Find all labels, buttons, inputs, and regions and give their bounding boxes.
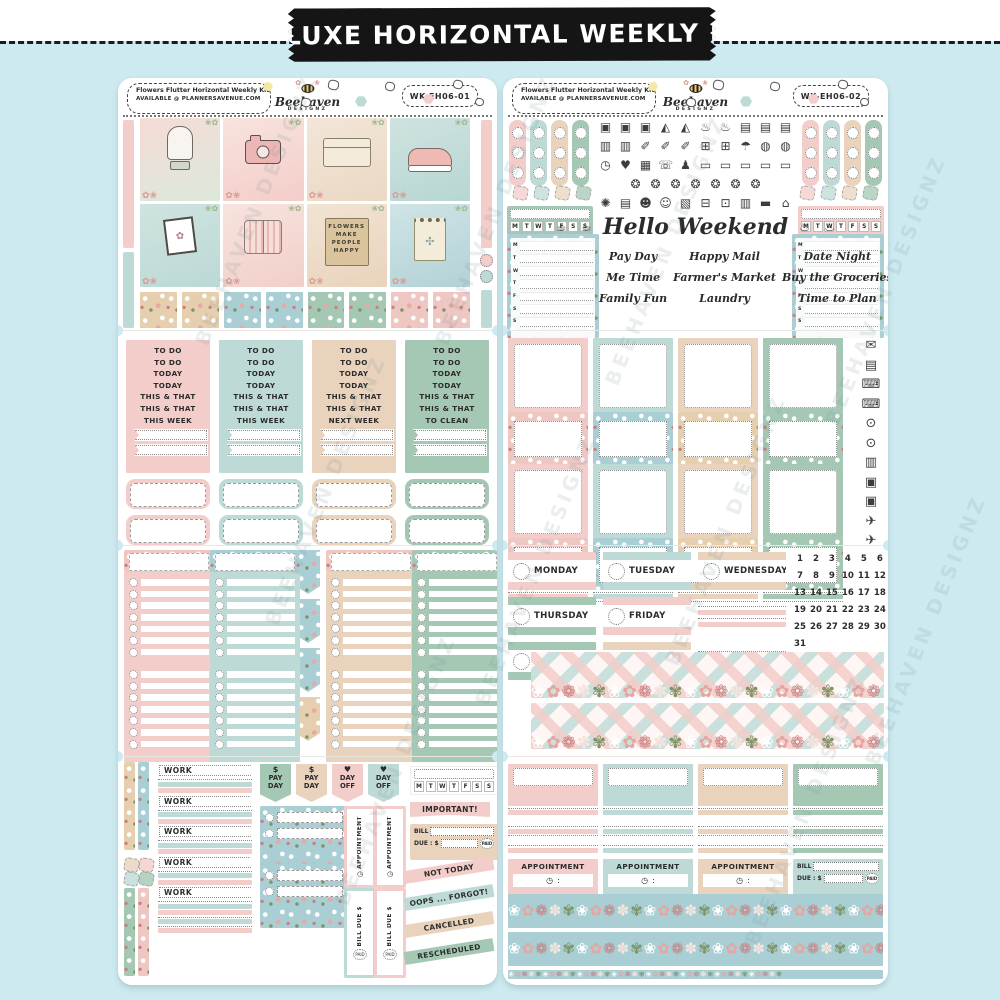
diagonal-strip: CANCELLED bbox=[404, 911, 495, 938]
day-name: THURSDAY bbox=[534, 611, 588, 621]
washing-machine-icon: ▣ bbox=[617, 118, 634, 135]
washi-strip-teal bbox=[158, 782, 252, 787]
hex-icon bbox=[355, 96, 367, 107]
checklist-row bbox=[215, 648, 295, 657]
checklist-line bbox=[227, 637, 295, 644]
flower-glyph: ✿ bbox=[725, 902, 739, 920]
todo-label: TO DO bbox=[405, 357, 489, 369]
floral-label-sticker bbox=[763, 412, 843, 464]
right-section-days-washi: MONDAYTUESDAYWEDNESDAYTHURSDAYFRIDAYSATU… bbox=[503, 548, 888, 754]
checklist-row bbox=[417, 670, 497, 679]
day-letter: T bbox=[513, 256, 518, 261]
flower-glyph: ✾ bbox=[673, 970, 680, 978]
checklist-header-label bbox=[326, 550, 416, 572]
checkbox-circle bbox=[129, 682, 138, 691]
label-box-sticker bbox=[793, 764, 883, 806]
tickets-icon: ▤ bbox=[865, 356, 877, 376]
todo-label: THIS WEEK bbox=[126, 415, 210, 427]
weekly-list-row: W bbox=[513, 266, 593, 276]
date-number: 4 bbox=[842, 554, 854, 564]
checklist-line bbox=[227, 706, 295, 713]
shopping-cart-icon: ⊞ bbox=[697, 137, 714, 154]
trash-can-icon: ▥ bbox=[617, 137, 634, 154]
checkbox-circle bbox=[331, 705, 340, 714]
flower-glyph: ❁ bbox=[556, 970, 563, 978]
checklist-line bbox=[429, 741, 497, 748]
day-name: WEDNESDAY bbox=[724, 566, 786, 576]
cat-icon: ☺ bbox=[657, 194, 674, 211]
dotted-line bbox=[158, 901, 252, 902]
flower-glyph: ✽ bbox=[806, 733, 821, 749]
day-middle: THURSDAY bbox=[508, 605, 596, 627]
checklist-row bbox=[417, 648, 497, 657]
tracker-letter: S bbox=[472, 781, 482, 792]
weekly-list-field: MTWTFSS bbox=[511, 238, 595, 340]
blank-flag-sticker bbox=[320, 444, 394, 456]
photo-box-botanical-frame: ✿ bbox=[140, 204, 220, 287]
halfbox-sticker bbox=[763, 464, 843, 538]
appointment-vertical-sticker: APPOINTMENT◷ bbox=[374, 806, 406, 888]
checklist-row bbox=[215, 682, 295, 691]
flower-border: ❀✿❁✽✾❀✿❁✽✾❀✿❁✽✾❀✿❁✽✾❀✿❁✽✾❀ bbox=[531, 735, 884, 749]
todo-column-pink: TO DOTO DOTODAYTODAYTHIS & THATTHIS & TH… bbox=[126, 340, 210, 545]
thin-strip bbox=[698, 848, 788, 853]
blank-flag-sticker bbox=[320, 429, 394, 441]
pennant-word: PAY bbox=[260, 774, 291, 782]
checkbox-circle bbox=[129, 705, 138, 714]
washi-strip-teal bbox=[158, 904, 252, 909]
flower-glyph: ❀ bbox=[680, 970, 687, 978]
flower-glyph: ❀ bbox=[749, 970, 756, 978]
halfbox-field bbox=[514, 470, 582, 534]
flower-glyph: ❀ bbox=[607, 682, 622, 698]
todo-label: TO DO bbox=[312, 345, 396, 357]
blue-floral-washi-strip: ❀✿❁✽✾❀✿❁✽✾❀✿❁✽✾❀✿❁✽✾❀✿❁✽✾❀✿❁✽✾❀✿❁✽✾❀✿❁✽✾ bbox=[508, 894, 883, 928]
sheet-code: WK-EH06-01 bbox=[402, 85, 478, 107]
tv-icon: ▭ bbox=[757, 156, 774, 173]
flower-glyph: ❁ bbox=[728, 970, 735, 978]
icon-row: ❂❂❂❂❂❂❂ bbox=[503, 175, 888, 192]
flower-glyph: ✿ bbox=[699, 682, 714, 698]
coffee-cup-icon: ☕ bbox=[553, 219, 570, 236]
appointment-field: APPOINTMENT◷ bbox=[347, 809, 373, 885]
tracker-letter: W bbox=[437, 781, 447, 792]
appointment-time-field: ◷: bbox=[513, 874, 593, 887]
scallop-hex-teal bbox=[480, 270, 493, 283]
checklist-row bbox=[215, 636, 295, 645]
checklist-line bbox=[429, 694, 497, 701]
mixer-icon: ♨ bbox=[717, 118, 734, 135]
todo-label: TODAY bbox=[405, 368, 489, 380]
flower-icon: ❀ bbox=[314, 79, 320, 87]
flower-glyph: ✾ bbox=[562, 940, 576, 958]
checklist-row bbox=[215, 740, 295, 749]
day-sticker-thursday: THURSDAY bbox=[508, 597, 596, 635]
washing-machine-icon: ▣ bbox=[637, 118, 654, 135]
icon-row: ◷♥▦☏♟▭▭▭▭▭ bbox=[503, 156, 888, 173]
flower-glyph: ✽ bbox=[820, 940, 834, 958]
checkbox-circle bbox=[129, 624, 138, 633]
cut-line bbox=[118, 756, 497, 757]
blank-flag-sticker bbox=[227, 429, 301, 441]
checkbox-circle bbox=[265, 813, 274, 822]
spray-bottle-icon: ✐ bbox=[677, 137, 694, 154]
flower-glyph: ✾ bbox=[630, 940, 644, 958]
washi-strip-teal bbox=[158, 843, 252, 848]
checklist-row bbox=[331, 682, 411, 691]
flower-glyph: ✿ bbox=[623, 733, 638, 749]
meal-icon: ❂ bbox=[667, 175, 684, 192]
kit-info-box: Flowers Flutter Horizontal Weekly Kit AV… bbox=[127, 83, 271, 114]
bill-field bbox=[813, 862, 879, 871]
availability-text: AVAILABLE @ PLANNERSAVENUE.COM bbox=[136, 96, 264, 102]
checklist-header-field bbox=[331, 553, 411, 571]
work-flag-sticker: WORK bbox=[158, 764, 252, 777]
dotted-hex-pink bbox=[138, 857, 155, 873]
flower-glyph: ✾ bbox=[562, 902, 576, 920]
spacer bbox=[793, 817, 883, 825]
checklist-line bbox=[227, 694, 295, 701]
laptop-icon: ⌨ bbox=[862, 375, 881, 395]
scallop-label-field bbox=[409, 483, 485, 507]
checkbox-circle bbox=[215, 590, 224, 599]
checkbox-circle bbox=[215, 578, 224, 587]
checklist-line bbox=[429, 602, 497, 609]
thin-strip bbox=[603, 848, 693, 853]
day-band bbox=[603, 642, 691, 650]
checklist-row bbox=[417, 624, 497, 633]
flower-glyph: ❁ bbox=[671, 940, 685, 958]
checkbox-circle bbox=[129, 578, 138, 587]
flower-glyph: ❁ bbox=[714, 682, 729, 698]
dotted-hex-green bbox=[138, 871, 155, 887]
scallop-label-sticker bbox=[126, 515, 210, 545]
checklist-row bbox=[129, 613, 209, 622]
script-phrase-sticker: Happy Mail bbox=[673, 250, 776, 263]
floral-side-strip bbox=[138, 762, 149, 850]
clock-icon: ◷ bbox=[546, 876, 553, 885]
checklist-box bbox=[124, 664, 214, 762]
halfbox-sticker bbox=[678, 464, 758, 538]
flower-glyph: ❀ bbox=[712, 940, 726, 958]
checkbox-circle bbox=[215, 682, 224, 691]
checkbox-circle bbox=[215, 705, 224, 714]
calendar-icon: ▤ bbox=[617, 194, 634, 211]
checkbox-circle bbox=[129, 728, 138, 737]
checklist-row bbox=[331, 716, 411, 725]
checkbox-circle bbox=[215, 648, 224, 657]
todo-label-block: TO DOTO DOTODAYTODAYTHIS & THATTHIS & TH… bbox=[312, 340, 396, 473]
label-field bbox=[277, 812, 343, 823]
dotted-line bbox=[793, 835, 883, 836]
bill-row: BILL bbox=[797, 862, 879, 871]
scallop-label-sticker bbox=[312, 479, 396, 509]
halfbox-field bbox=[769, 344, 837, 408]
sticker-sheet-left: Flowers Flutter Horizontal Weekly Kit AV… bbox=[118, 78, 497, 985]
washi-strip-pink bbox=[158, 910, 252, 915]
checkbox-circle bbox=[417, 716, 426, 725]
label-field bbox=[277, 886, 343, 897]
halfbox-field bbox=[514, 344, 582, 408]
cut-line bbox=[503, 545, 888, 546]
checkbox-circle bbox=[215, 716, 224, 725]
flower-glyph: ✿ bbox=[687, 970, 694, 978]
globe-icon: ◍ bbox=[777, 137, 794, 154]
checkbox-circle bbox=[331, 670, 340, 679]
checklist-line bbox=[141, 671, 209, 678]
checklist-line bbox=[343, 718, 411, 725]
floral-label-sticker bbox=[508, 412, 588, 464]
checklist-row bbox=[129, 670, 209, 679]
bill-field bbox=[430, 827, 494, 836]
washi-strip-pink bbox=[158, 928, 252, 933]
hello-weekend-row: ☕☕Hello Weekend♨♨ bbox=[503, 214, 888, 240]
cut-line bbox=[503, 330, 888, 331]
flower-glyph: ✽ bbox=[806, 682, 821, 698]
checkbox-circle bbox=[417, 636, 426, 645]
checklist-row bbox=[129, 693, 209, 702]
left-section-flags-labels: WORKWORKWORKWORKWORK$PAYDAY$PAYDAY♥DAYOF… bbox=[118, 760, 497, 982]
day-band bbox=[508, 642, 596, 650]
day-name: MONDAY bbox=[534, 566, 578, 576]
pennant-row: $PAYDAY$PAYDAY♥DAYOFF♥DAYOFF bbox=[260, 764, 399, 802]
floral-box-row bbox=[265, 812, 343, 823]
money-bag-icon: ⊙ bbox=[866, 414, 877, 434]
flower-glyph: ❁ bbox=[867, 733, 882, 749]
flower-glyph: ✽ bbox=[617, 940, 631, 958]
flower-glyph: ✿ bbox=[657, 940, 671, 958]
checklist-line bbox=[227, 718, 295, 725]
dotted-line bbox=[508, 845, 598, 846]
checkbox-circle bbox=[417, 670, 426, 679]
checklist-line bbox=[141, 602, 209, 609]
checklist-box bbox=[124, 572, 214, 670]
todo-label: THIS & THAT bbox=[219, 391, 303, 403]
flower-glyph: ❀ bbox=[576, 902, 590, 920]
kit-info-box: Flowers Flutter Horizontal Weekly Kit AV… bbox=[512, 83, 656, 114]
pennant-icon: $ bbox=[296, 766, 327, 774]
scallop-label-field bbox=[223, 519, 299, 543]
checklist-row bbox=[215, 590, 295, 599]
thin-strip bbox=[793, 810, 883, 815]
halfbox-sticker bbox=[508, 464, 588, 538]
flower-glyph: ✾ bbox=[698, 902, 712, 920]
flower-glyph: ✽ bbox=[729, 733, 744, 749]
todo-columns-row: TO DOTO DOTODAYTODAYTHIS & THATTHIS & TH… bbox=[118, 334, 497, 545]
flower-glyph: ❁ bbox=[807, 902, 821, 920]
floral-side-strip bbox=[124, 762, 135, 850]
checklist-line bbox=[429, 637, 497, 644]
flower-glyph: ✽ bbox=[549, 902, 563, 920]
todo-label: TO DO bbox=[126, 357, 210, 369]
date-number: 21 bbox=[826, 605, 838, 615]
sign-word: MAKE bbox=[326, 231, 368, 239]
bill-due-label: BILL DUE $ bbox=[357, 906, 363, 947]
pennant-word: PAY bbox=[296, 774, 327, 782]
sign-word: FLOWERS bbox=[326, 223, 368, 231]
bill-due-label: BILL DUE $ bbox=[387, 906, 393, 947]
bill-due-box: BILLDUE :$PAID bbox=[410, 824, 497, 860]
flower-glyph: ❁ bbox=[603, 940, 617, 958]
photo-box-keepsake-box bbox=[307, 118, 387, 201]
flower-glyph: ❀ bbox=[847, 902, 861, 920]
todo-label: THIS & THAT bbox=[312, 403, 396, 415]
checklist-row bbox=[129, 648, 209, 657]
flower-glyph: ✿ bbox=[793, 902, 807, 920]
flower-glyph: ✾ bbox=[630, 902, 644, 920]
checklist-row bbox=[331, 728, 411, 737]
checklist-row bbox=[129, 624, 209, 633]
flower-glyph: ✽ bbox=[549, 940, 563, 958]
meal-icon: ❂ bbox=[627, 175, 644, 192]
tv-icon: ▭ bbox=[777, 156, 794, 173]
washi-strip-pink bbox=[158, 880, 252, 885]
dotted-line bbox=[793, 808, 883, 809]
time-colon: : bbox=[557, 876, 560, 885]
floral-label-field bbox=[599, 421, 667, 457]
weekly-list-row: S bbox=[798, 317, 878, 327]
flower-glyph: ❁ bbox=[522, 970, 529, 978]
appointment-label: APPOINTMENT bbox=[357, 816, 363, 869]
photo-box-flower-sneakers bbox=[390, 118, 470, 201]
checklist-box bbox=[326, 664, 416, 762]
flower-glyph: ❀ bbox=[684, 682, 699, 698]
side-strip bbox=[123, 120, 134, 248]
todo-label: TO DO bbox=[219, 357, 303, 369]
checklist-line bbox=[429, 671, 497, 678]
flower-glyph: ✾ bbox=[821, 682, 836, 698]
sign-word: PEOPLE bbox=[326, 239, 368, 247]
checklist-row bbox=[331, 705, 411, 714]
checklist-line bbox=[343, 694, 411, 701]
checkbox-circle bbox=[331, 648, 340, 657]
flower-glyph: ✽ bbox=[577, 682, 592, 698]
laundry-basket-icon: ▤ bbox=[757, 118, 774, 135]
kettle-icon: ♨ bbox=[796, 219, 813, 236]
diagonal-strip-group: NOT TODAYOOPS ... FORGOT!CANCELLEDRESCHE… bbox=[404, 864, 494, 972]
flower-glyph: ❁ bbox=[790, 733, 805, 749]
halfbox-sticker bbox=[593, 464, 673, 538]
day-letter: M bbox=[798, 243, 803, 248]
due-field bbox=[441, 839, 478, 848]
flower-glyph: ✽ bbox=[820, 902, 834, 920]
flower-glyph: ✿ bbox=[721, 970, 728, 978]
bill-label: BILL bbox=[797, 863, 811, 870]
flower-glyph: ❁ bbox=[638, 733, 653, 749]
list-line bbox=[520, 254, 593, 264]
scallop-label-sticker bbox=[312, 515, 396, 545]
work-flag-sticker: WORK bbox=[158, 886, 252, 899]
flower-glyph: ✾ bbox=[745, 733, 760, 749]
flower-glyph: ✿ bbox=[725, 940, 739, 958]
todo-label-block: TO DOTO DOTODAYTODAYTHIS & THATTHIS & TH… bbox=[405, 340, 489, 473]
money-icon: ▬ bbox=[757, 194, 774, 211]
washi-strip-pink bbox=[158, 819, 252, 824]
flower-glyph: ❁ bbox=[671, 902, 685, 920]
checkbox-circle bbox=[417, 590, 426, 599]
checkbox-circle bbox=[417, 728, 426, 737]
checklist-row bbox=[331, 613, 411, 622]
date-circle bbox=[513, 563, 530, 580]
checklist-row bbox=[215, 578, 295, 587]
scallop-hex-pink bbox=[480, 254, 493, 267]
washi-flag bbox=[308, 292, 345, 328]
paid-label: PAID bbox=[383, 949, 397, 960]
checklist-line bbox=[227, 614, 295, 621]
checklist-row bbox=[331, 601, 411, 610]
clock-icon: ◷ bbox=[597, 156, 614, 173]
shopping-cart-icon: ⊞ bbox=[717, 137, 734, 154]
flower-glyph: ❀ bbox=[836, 733, 851, 749]
bowling-pins-icon: ♟ bbox=[677, 156, 694, 173]
list-line bbox=[805, 304, 878, 314]
flower-glyph: ❀ bbox=[847, 940, 861, 958]
pennant-icon: ♥ bbox=[368, 766, 399, 774]
dotted-line bbox=[158, 917, 252, 918]
photo-box-butterfly-cloche bbox=[140, 118, 220, 201]
date-number: 22 bbox=[842, 605, 854, 615]
washi-strip-pink bbox=[158, 788, 252, 793]
work-flag-column: WORKWORKWORKWORKWORK bbox=[158, 764, 252, 935]
washi-strip-teal bbox=[158, 919, 252, 924]
checklist-line bbox=[429, 614, 497, 621]
todo-label: TODAY bbox=[312, 368, 396, 380]
list-line bbox=[520, 279, 593, 289]
clock-icon: ◷ bbox=[357, 870, 363, 878]
date-number: 26 bbox=[810, 622, 822, 632]
flower-glyph: ✾ bbox=[668, 733, 683, 749]
scallop-label-field bbox=[316, 519, 392, 543]
appointment-label: APPOINTMENT bbox=[608, 862, 688, 871]
day-letter: T bbox=[513, 281, 518, 286]
floral-label-sticker bbox=[593, 412, 673, 464]
weekly-list-row: S bbox=[513, 317, 593, 327]
flower-glyph: ❀ bbox=[712, 902, 726, 920]
flower-glyph: ✾ bbox=[698, 940, 712, 958]
washi-flag bbox=[349, 292, 386, 328]
thin-strip bbox=[508, 829, 598, 834]
date-number: 23 bbox=[858, 605, 870, 615]
flower-glyph: ✽ bbox=[617, 902, 631, 920]
pennant-pay-day: $PAYDAY bbox=[296, 764, 327, 802]
kettle-icon: ♨ bbox=[821, 219, 838, 236]
weekly-list-box: MTWTFSS bbox=[507, 234, 599, 338]
flower-glyph: ✽ bbox=[653, 733, 668, 749]
bill-row: BILL bbox=[414, 827, 494, 836]
camera-icon: ▣ bbox=[865, 492, 877, 512]
dotted-hex-tan bbox=[123, 857, 140, 873]
checklist-row bbox=[215, 613, 295, 622]
flower-glyph: ❁ bbox=[807, 940, 821, 958]
washi-strip-teal bbox=[158, 873, 252, 878]
todo-label: THIS & THAT bbox=[126, 403, 210, 415]
appointment-label: APPOINTMENT bbox=[513, 862, 593, 871]
hex-icon bbox=[740, 96, 752, 107]
checklist-header-label bbox=[412, 550, 497, 572]
flower-glyph: ❁ bbox=[562, 733, 577, 749]
flower-glyph: ❁ bbox=[875, 902, 883, 920]
tracker-letter: T bbox=[449, 781, 459, 792]
flower-glyph: ❁ bbox=[638, 682, 653, 698]
date-circle bbox=[703, 563, 720, 580]
checklist-line bbox=[343, 579, 411, 586]
checklist-row bbox=[331, 693, 411, 702]
flower-glyph: ✿ bbox=[657, 902, 671, 920]
pennant-day-off: ♥DAYOFF bbox=[332, 764, 363, 802]
label-box-field bbox=[608, 768, 688, 786]
dotted-line bbox=[793, 826, 883, 827]
checkbox-circle bbox=[417, 624, 426, 633]
